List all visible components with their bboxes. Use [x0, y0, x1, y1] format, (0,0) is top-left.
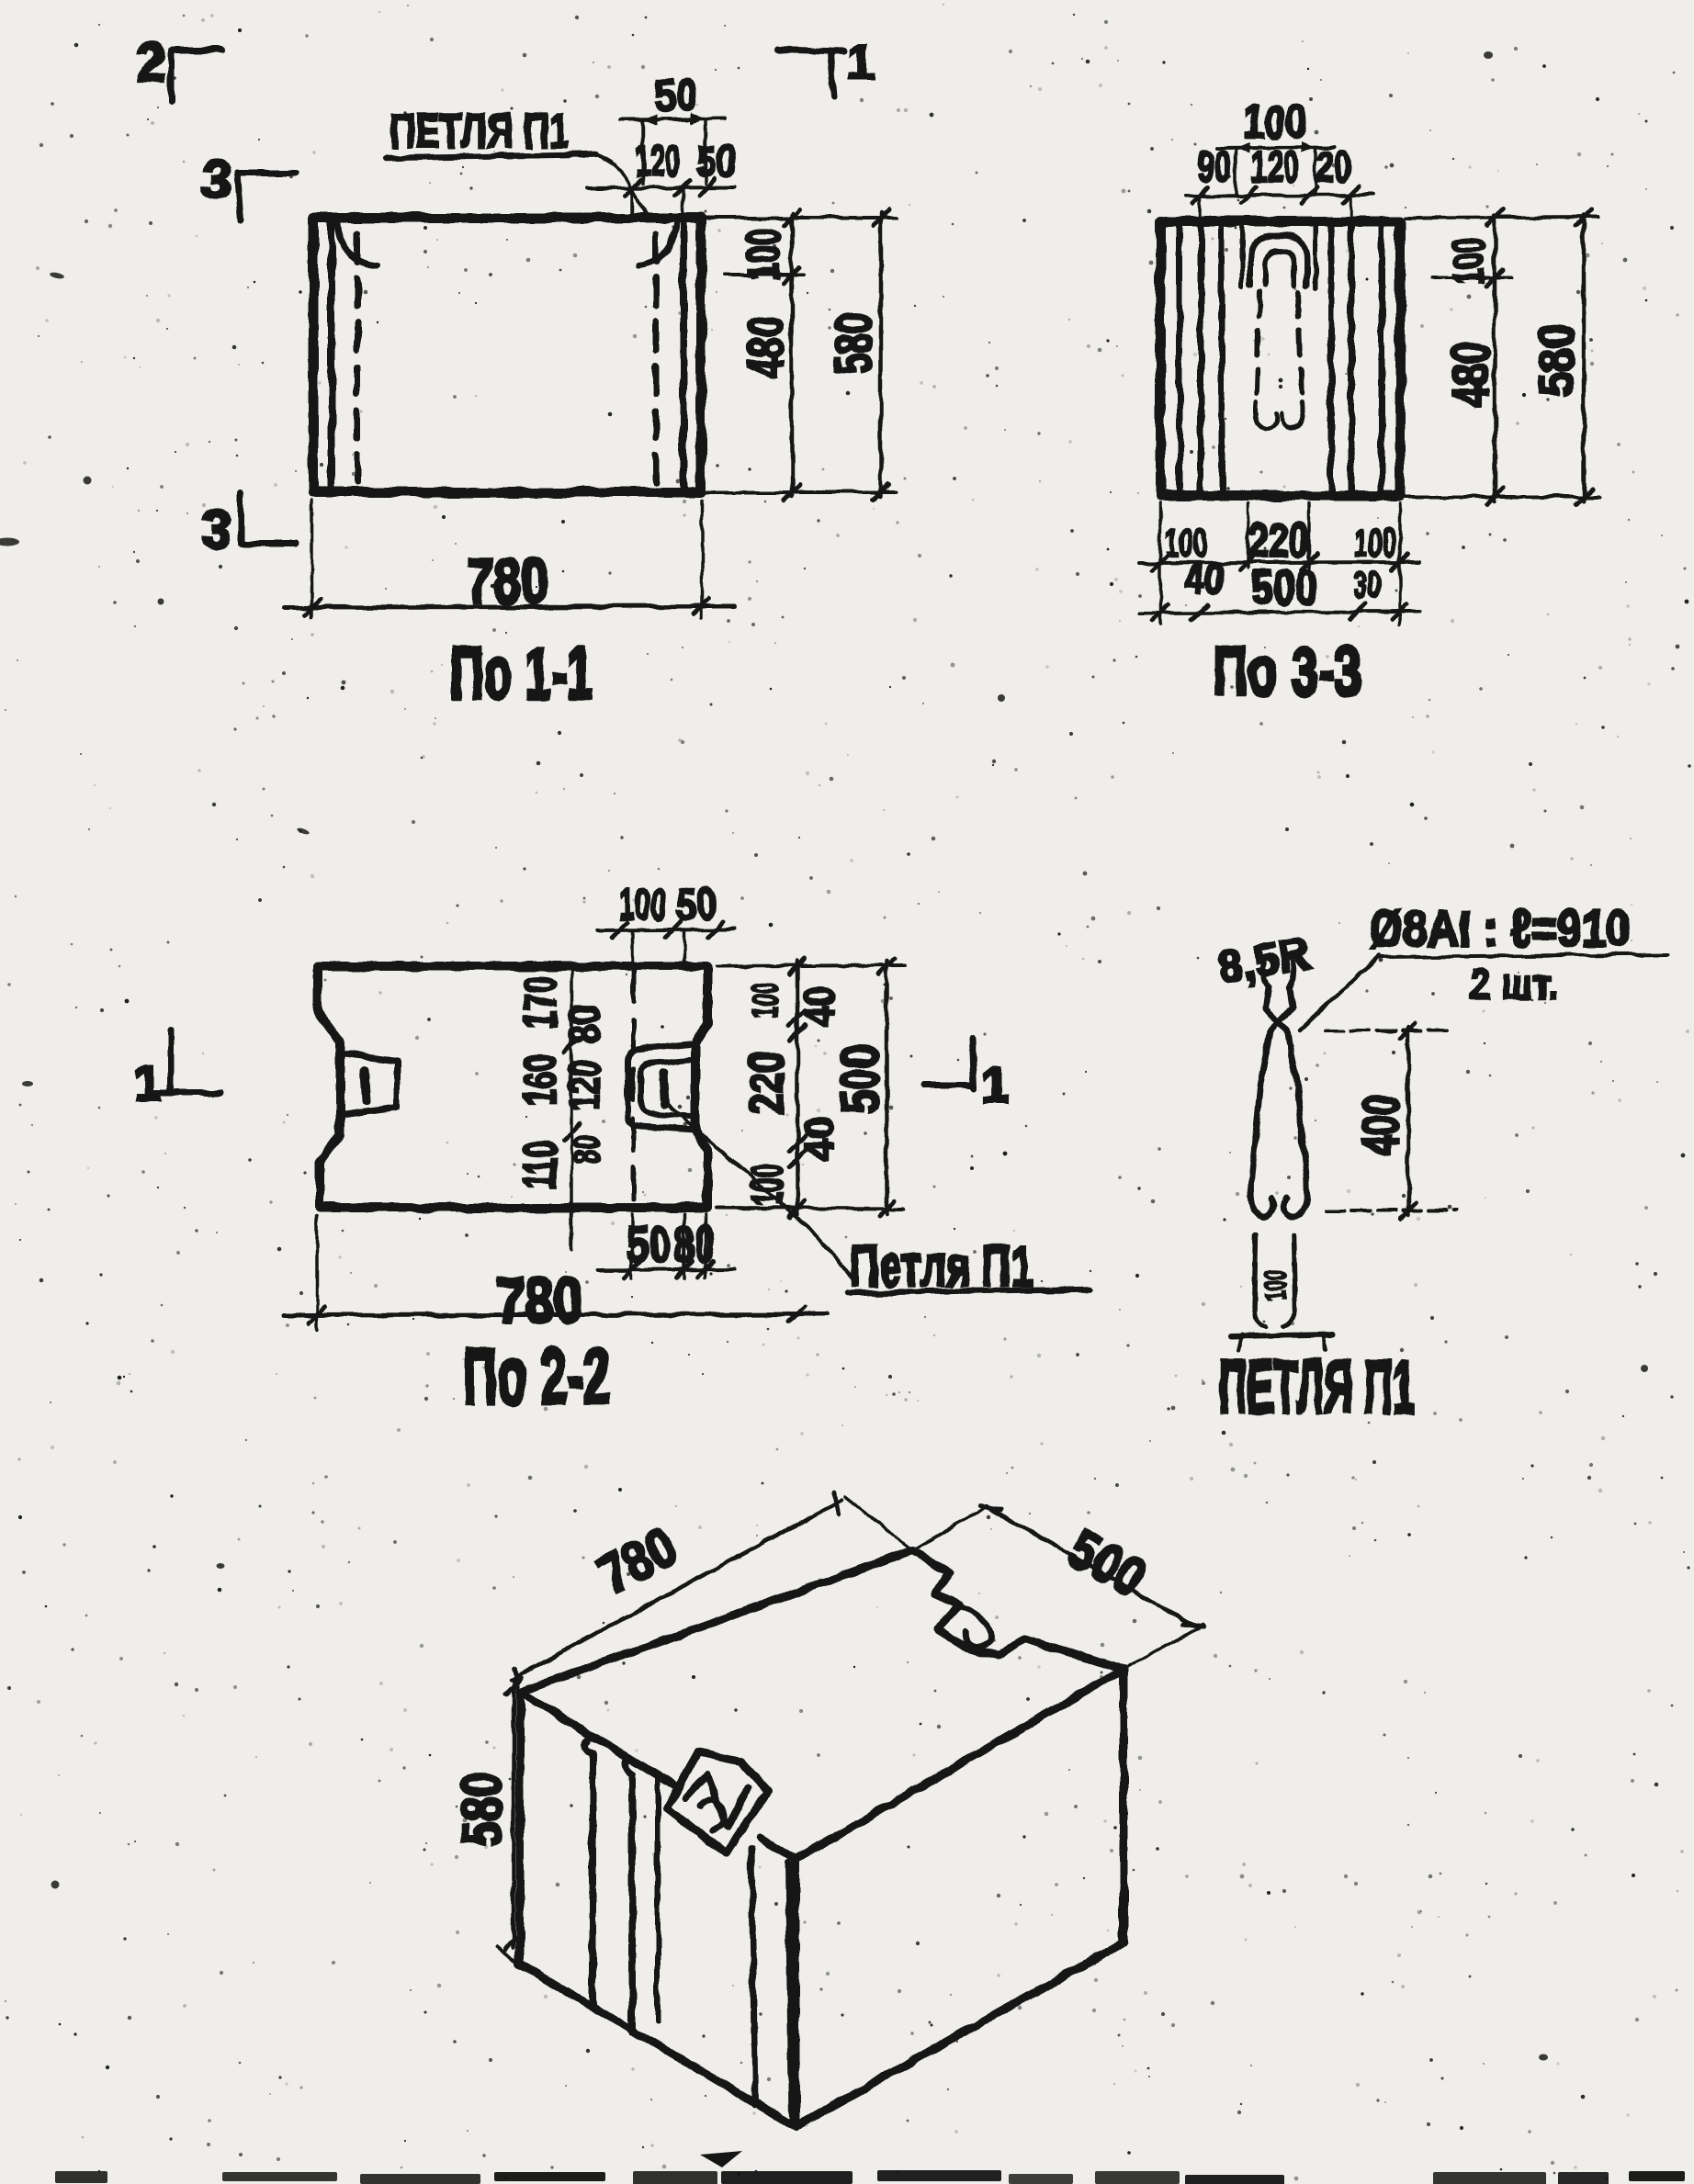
svg-text:ПЕТЛЯ П1: ПЕТЛЯ П1 — [390, 105, 570, 158]
svg-text:ПЕТЛЯ П1: ПЕТЛЯ П1 — [1218, 1345, 1415, 1429]
svg-text:220: 220 — [740, 1051, 794, 1115]
svg-text:120: 120 — [1251, 143, 1299, 192]
svg-text:170: 170 — [514, 975, 566, 1029]
svg-text:400: 400 — [1351, 1095, 1409, 1155]
svg-text:1: 1 — [134, 1056, 162, 1111]
svg-text:580: 580 — [824, 312, 882, 375]
svg-text:90: 90 — [1197, 143, 1232, 192]
svg-text:По 1-1: По 1-1 — [450, 632, 593, 714]
svg-text:480: 480 — [1441, 342, 1499, 408]
svg-text:1: 1 — [981, 1058, 1009, 1113]
svg-text:500: 500 — [1251, 560, 1317, 615]
svg-text:1: 1 — [847, 35, 875, 90]
svg-text:По 2-2: По 2-2 — [463, 1333, 610, 1421]
svg-text:160: 160 — [514, 1054, 566, 1106]
svg-text:3: 3 — [202, 151, 232, 210]
svg-text:100: 100 — [1259, 1269, 1293, 1300]
svg-text:30: 30 — [1353, 565, 1381, 605]
svg-text:110: 110 — [514, 1141, 566, 1190]
svg-text:50: 50 — [627, 1215, 671, 1273]
svg-text:Ø8АI : ℓ=910: Ø8АI : ℓ=910 — [1369, 899, 1631, 957]
svg-text:40: 40 — [796, 986, 843, 1027]
svg-text:3: 3 — [202, 500, 232, 559]
svg-text:100: 100 — [745, 983, 785, 1018]
svg-text:780: 780 — [496, 1265, 582, 1336]
svg-text:100: 100 — [741, 1164, 793, 1206]
svg-text:100: 100 — [1445, 237, 1494, 285]
svg-text:100: 100 — [1354, 521, 1396, 566]
svg-text:120: 120 — [560, 1060, 608, 1111]
svg-text:100: 100 — [1244, 96, 1306, 148]
svg-text:80: 80 — [560, 1005, 608, 1043]
svg-text:480: 480 — [739, 316, 794, 378]
svg-text:500: 500 — [830, 1045, 890, 1113]
svg-text:По 3-3: По 3-3 — [1213, 633, 1361, 709]
svg-text:2 шт.: 2 шт. — [1470, 961, 1558, 1009]
svg-text:580: 580 — [451, 1773, 513, 1846]
svg-text:40: 40 — [796, 1117, 843, 1161]
svg-text:40: 40 — [1184, 555, 1225, 602]
svg-text:2: 2 — [137, 33, 166, 93]
svg-text:20: 20 — [1316, 143, 1351, 192]
svg-text:80: 80 — [567, 1135, 607, 1165]
svg-text:100: 100 — [738, 229, 789, 280]
svg-text:580: 580 — [1530, 323, 1584, 397]
svg-text:780: 780 — [466, 545, 548, 616]
